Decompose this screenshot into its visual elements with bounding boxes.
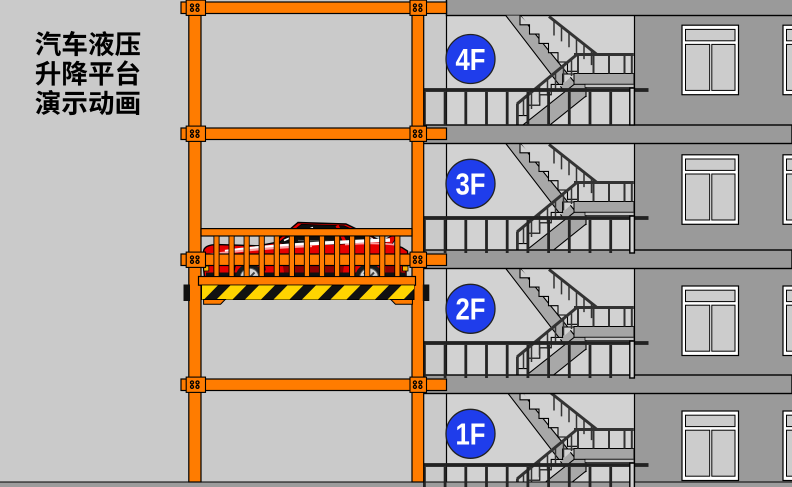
svg-text:1F: 1F — [456, 417, 486, 452]
svg-text:2F: 2F — [456, 292, 486, 327]
svg-text:3F: 3F — [456, 167, 486, 202]
svg-text:4F: 4F — [456, 42, 486, 77]
